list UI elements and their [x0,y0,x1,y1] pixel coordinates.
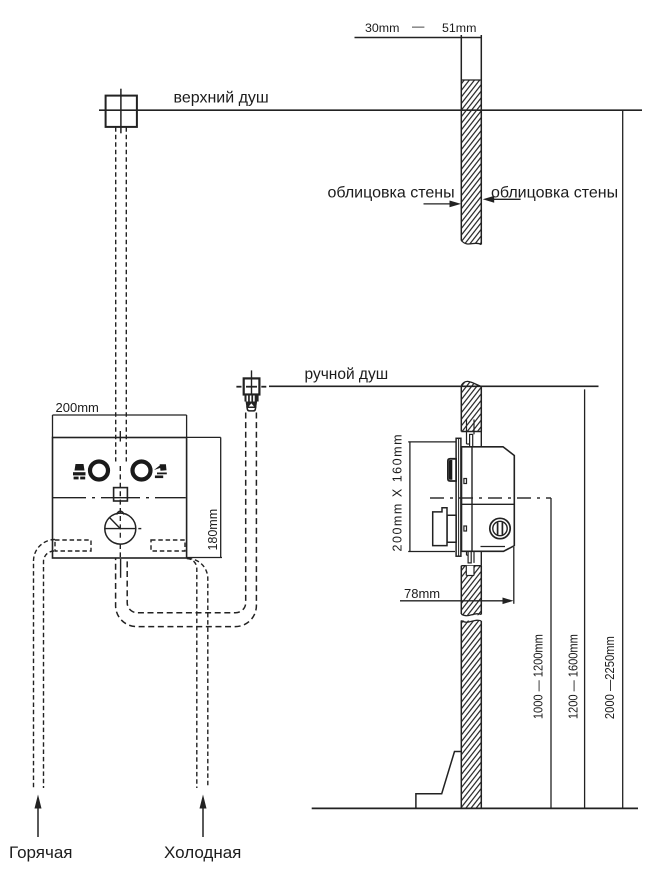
svg-text:Горячая: Горячая [9,843,73,862]
svg-text:1000 — 1200mm: 1000 — 1200mm [531,634,545,719]
svg-text:51mm: 51mm [442,21,476,35]
svg-text:78mm: 78mm [404,586,440,601]
svg-text:200mm: 200mm [56,400,99,415]
svg-text:—: — [412,19,425,33]
svg-text:Холодная: Холодная [164,843,241,862]
svg-text:180mm: 180mm [206,509,220,551]
svg-text:200mm X 160mm: 200mm X 160mm [390,435,404,552]
svg-text:верхний душ: верхний душ [174,90,269,107]
svg-text:30mm: 30mm [365,21,399,35]
svg-text:ручной душ: ручной душ [305,366,389,383]
svg-text:2000 —2250mm: 2000 —2250mm [603,636,617,719]
svg-text:облицовка стены: облицовка стены [328,184,455,201]
svg-text:1200 — 1600mm: 1200 — 1600mm [567,634,581,719]
